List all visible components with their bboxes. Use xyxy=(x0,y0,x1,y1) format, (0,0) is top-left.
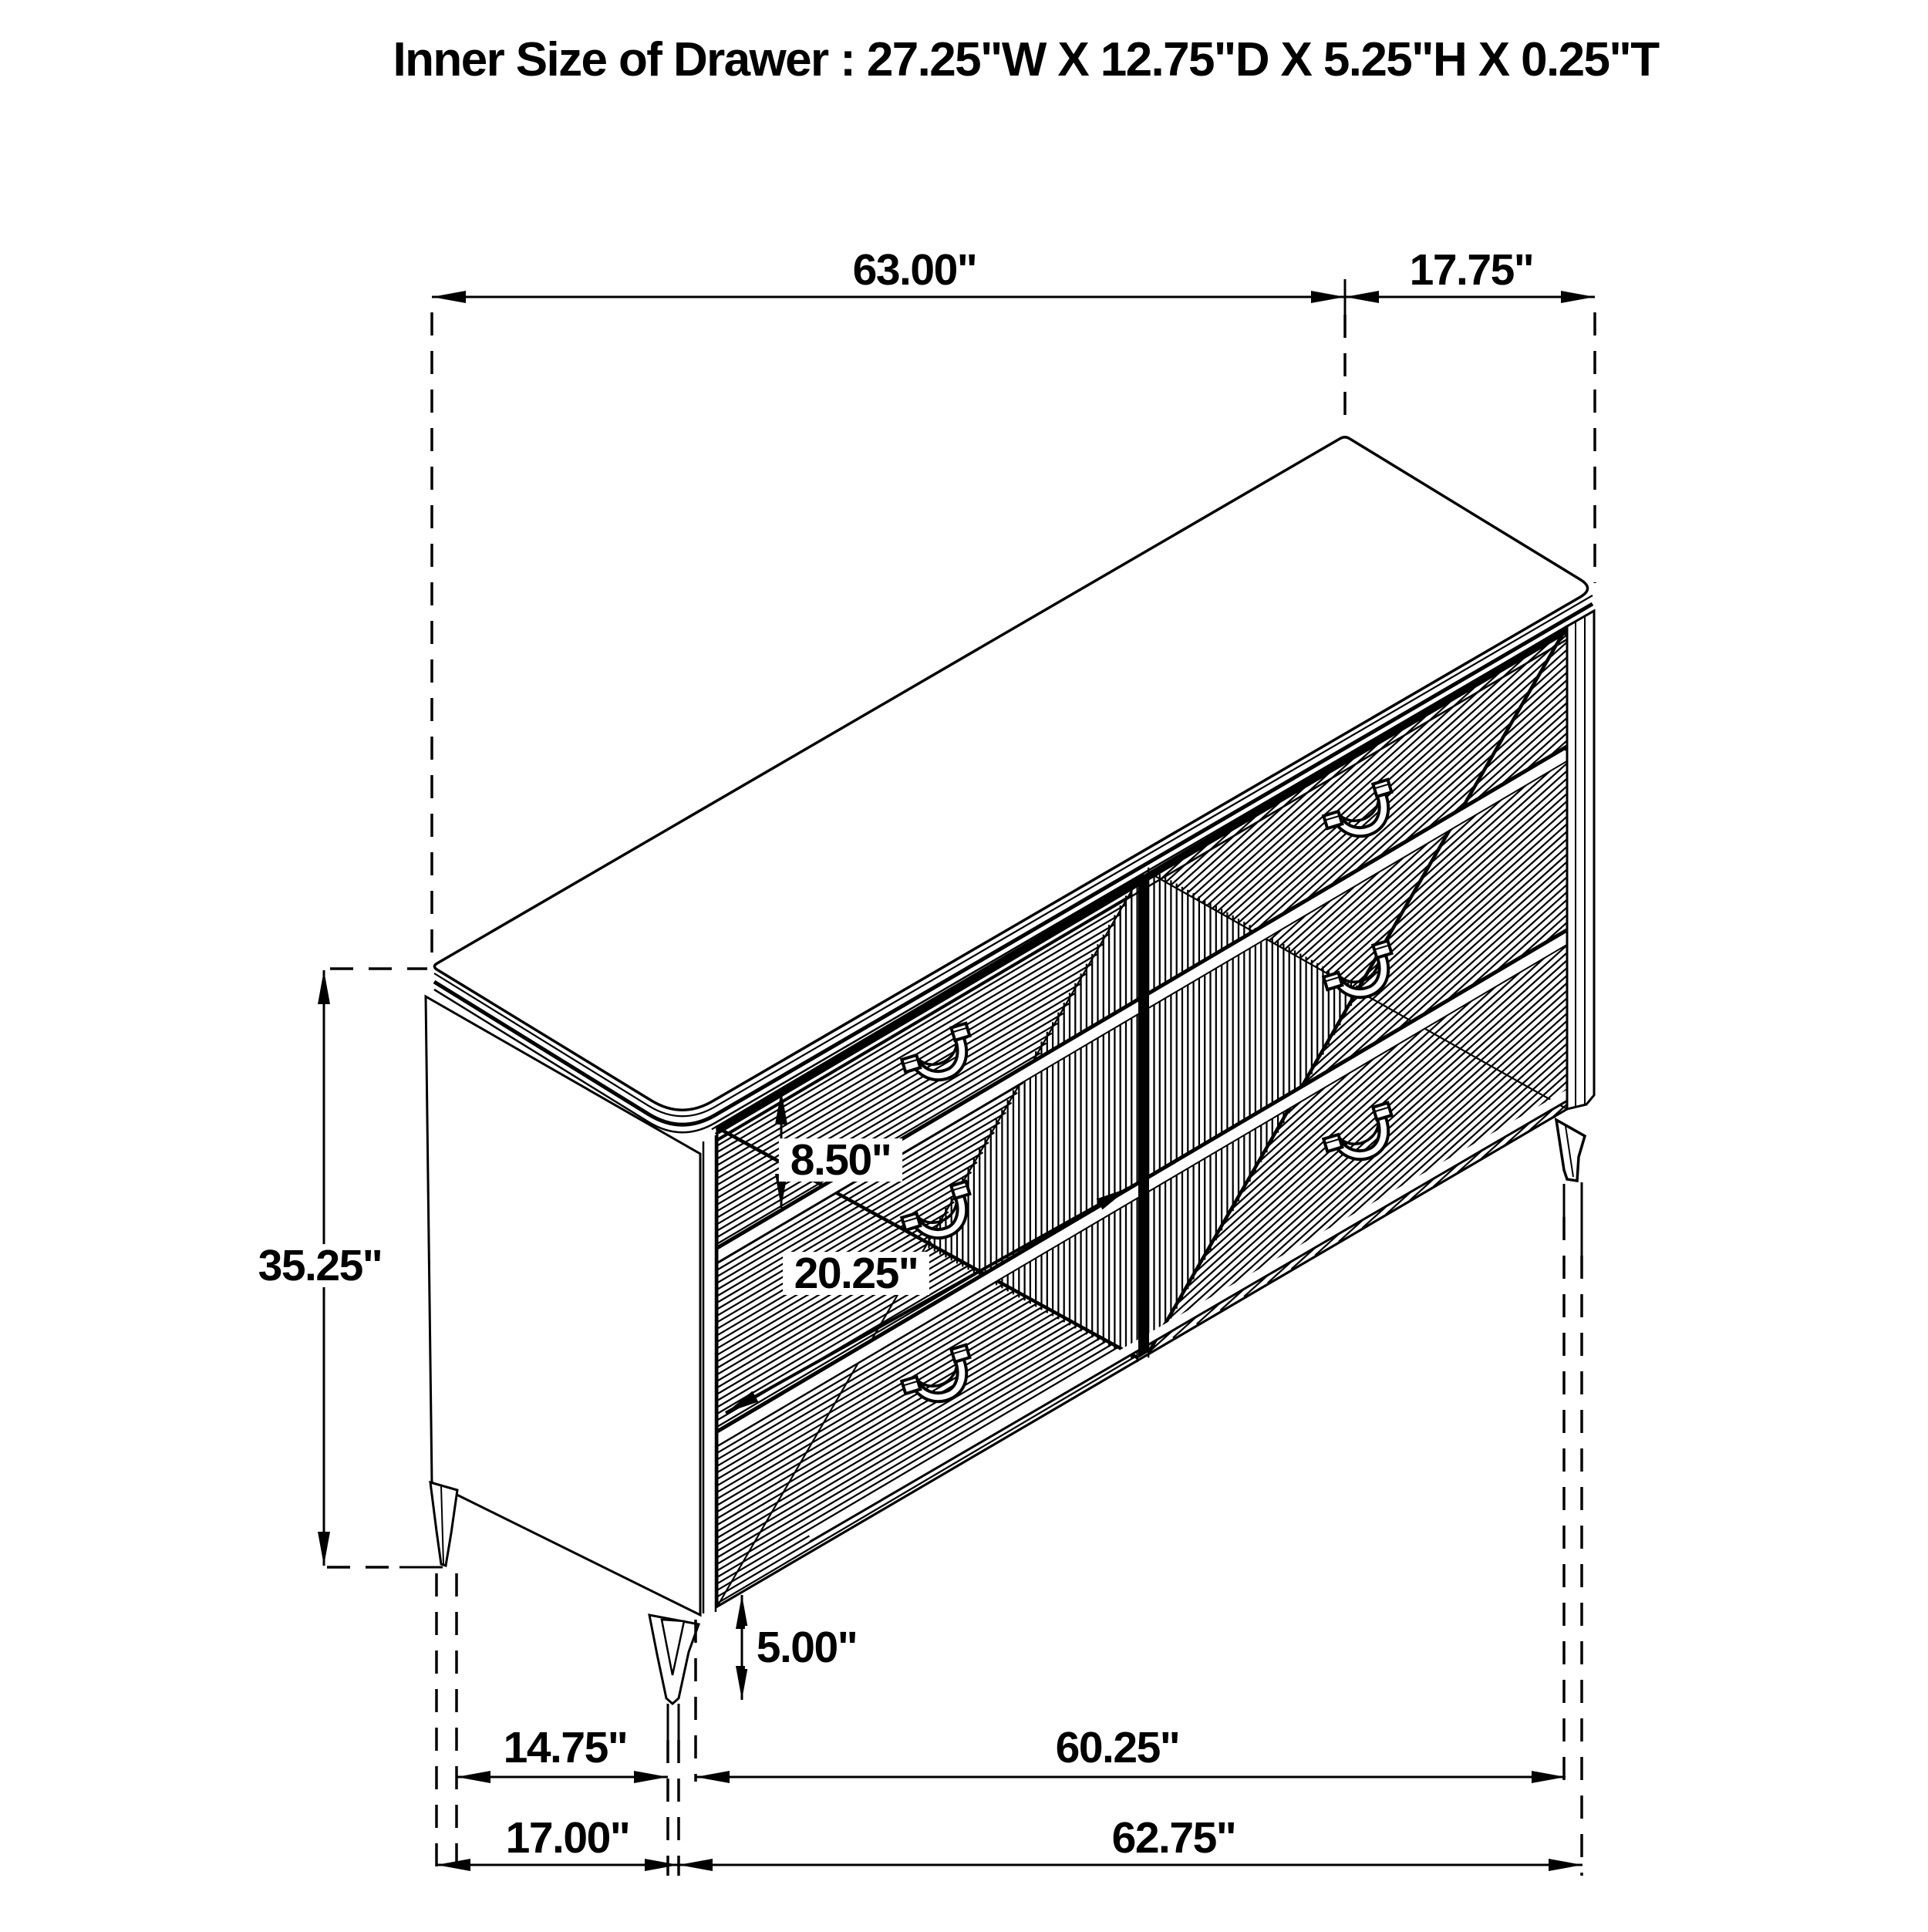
svg-text:35.25": 35.25" xyxy=(258,1241,383,1290)
svg-text:14.75": 14.75" xyxy=(504,1723,628,1772)
svg-text:17.00": 17.00" xyxy=(506,1813,630,1863)
svg-text:62.75": 62.75" xyxy=(1112,1813,1236,1863)
svg-text:17.75": 17.75" xyxy=(1410,245,1534,295)
svg-text:63.00": 63.00" xyxy=(853,245,977,295)
svg-text:5.00": 5.00" xyxy=(757,1623,857,1672)
svg-text:20.25": 20.25" xyxy=(794,1249,918,1298)
svg-text:Inner Size of Drawer : 27.25"W: Inner Size of Drawer : 27.25"W X 12.75"D… xyxy=(393,33,1660,86)
svg-text:8.50": 8.50" xyxy=(790,1135,891,1185)
svg-text:60.25": 60.25" xyxy=(1056,1723,1180,1772)
